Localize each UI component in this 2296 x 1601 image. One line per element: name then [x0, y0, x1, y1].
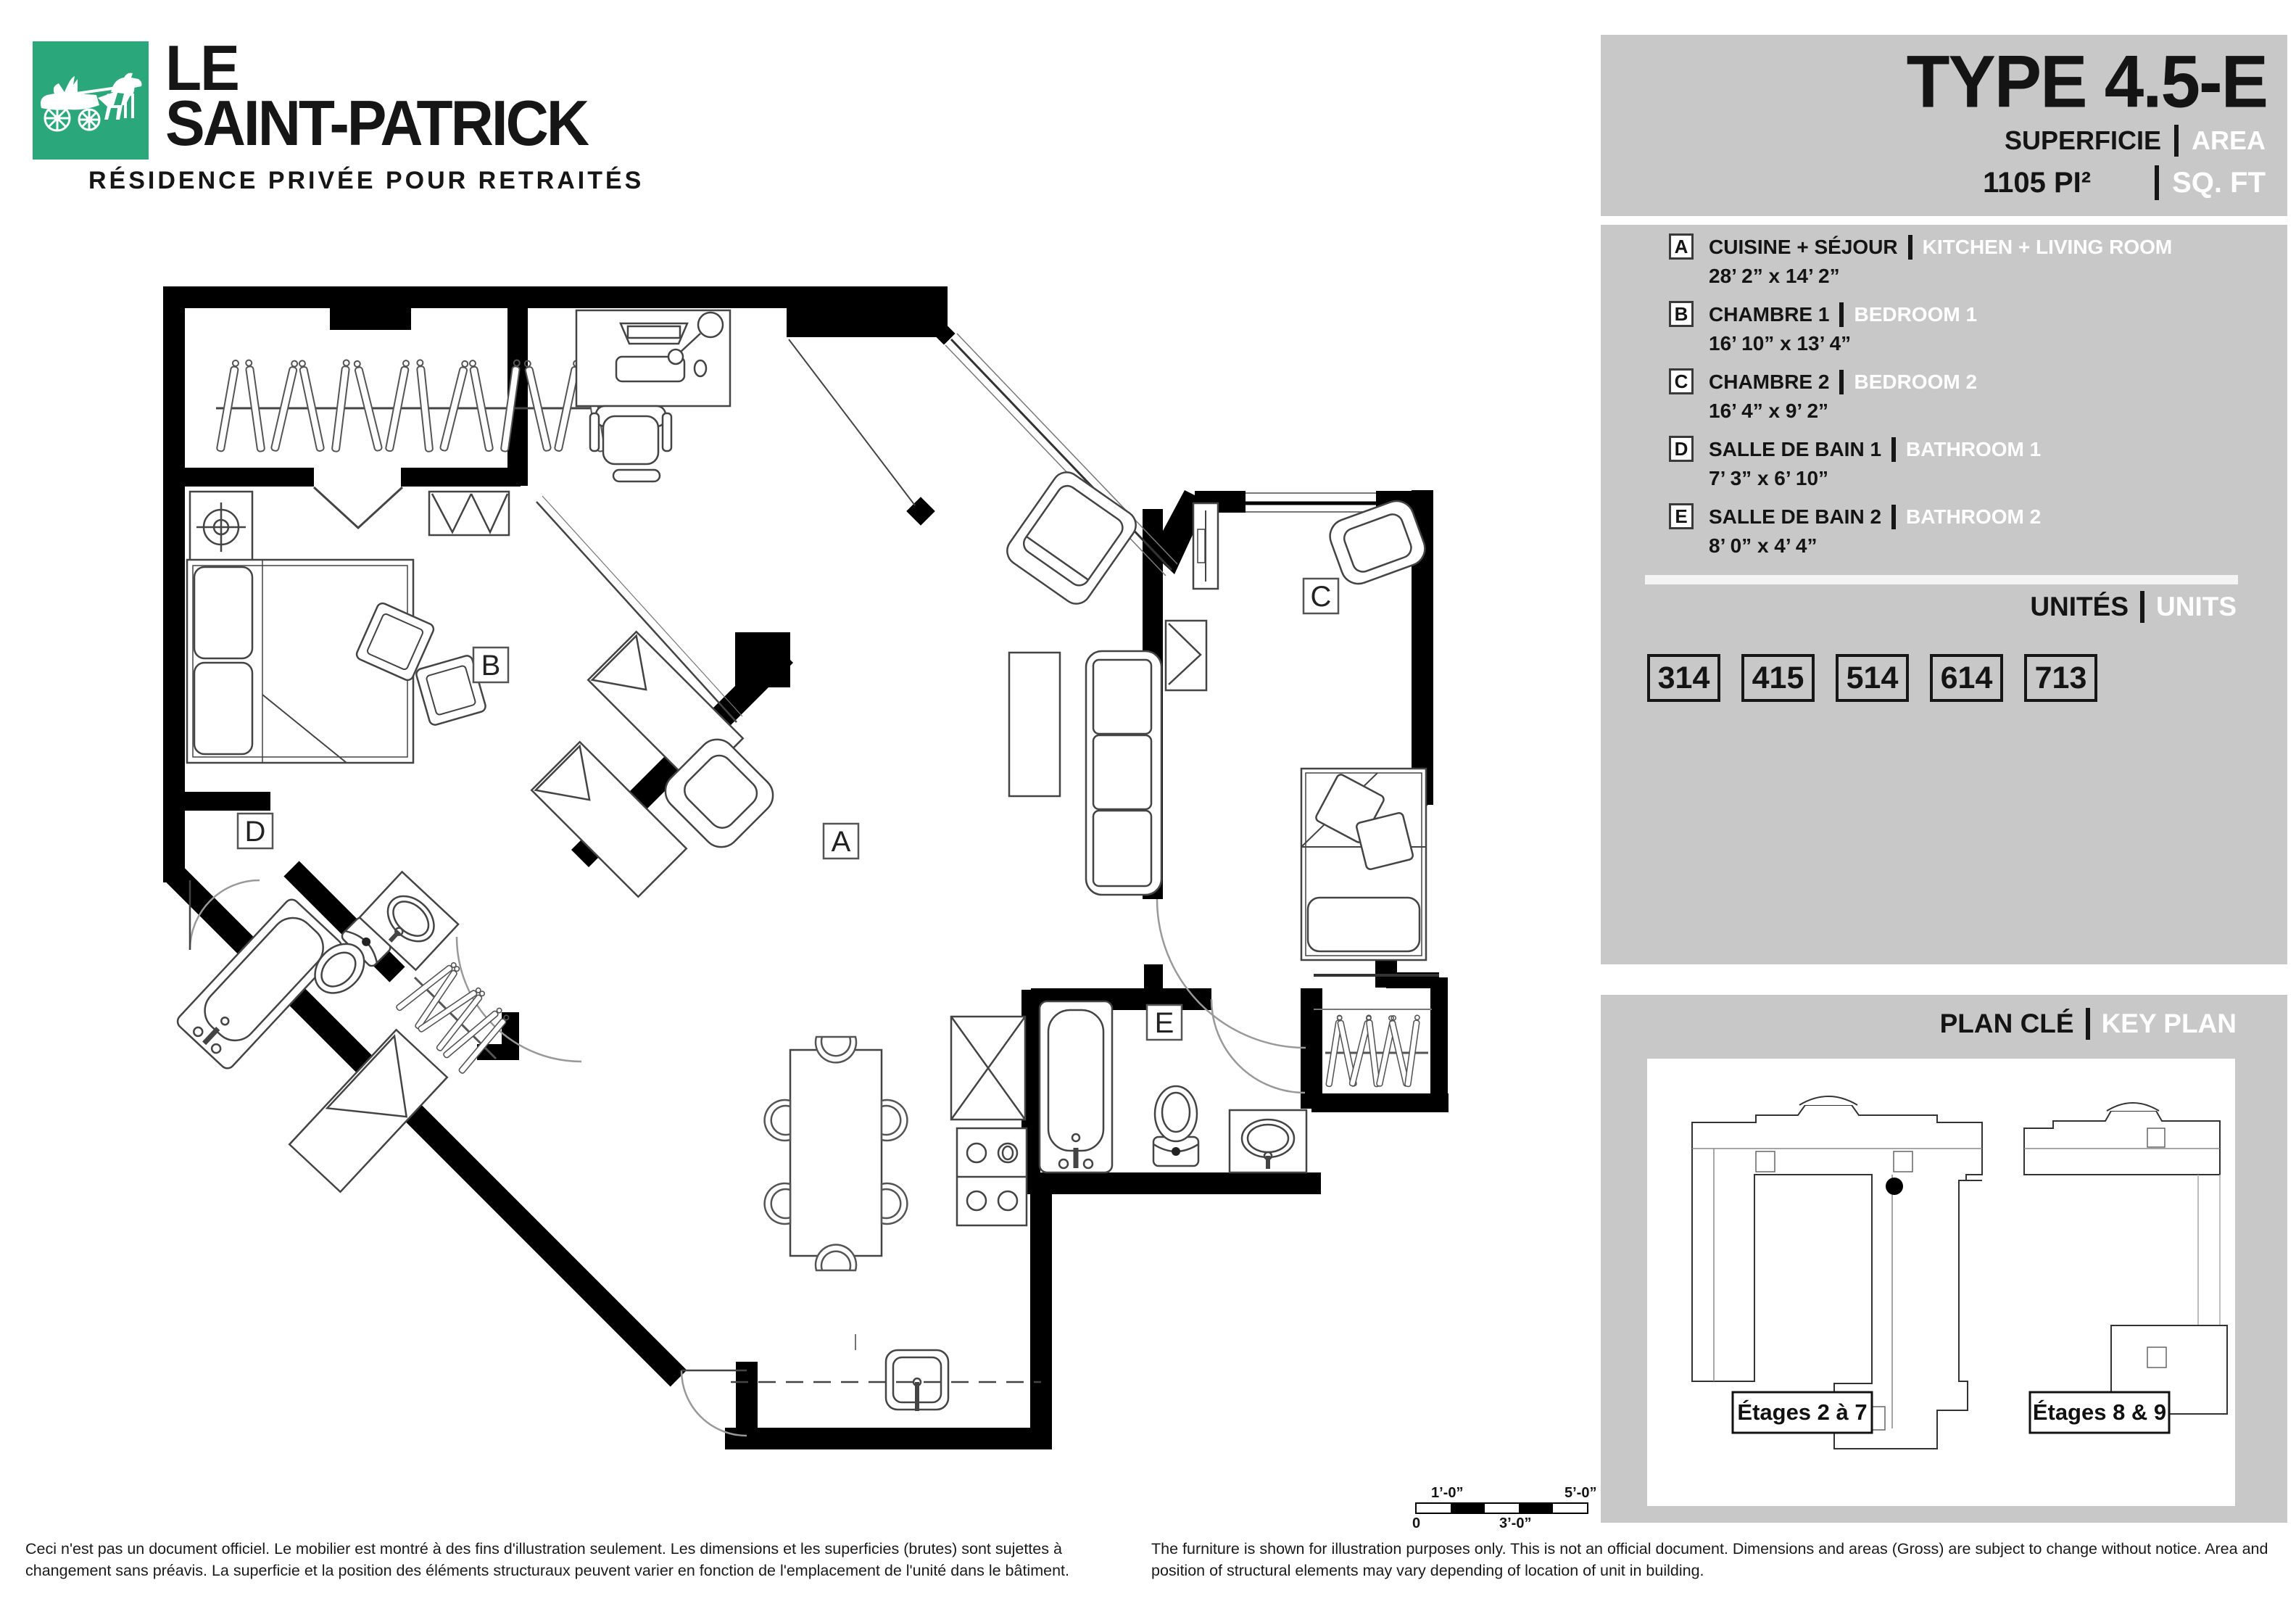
legend-item-e: E SALLE DE BAIN 2BATHROOM 2 8’ 0” x 4’ 4…: [1669, 503, 2273, 560]
room-name-fr: CHAMBRE 2: [1709, 371, 1829, 394]
legend-letter: A: [1669, 233, 1694, 260]
ceiling-light: [190, 492, 252, 563]
key-plan-panel: PLAN CLÉ KEY PLAN: [1601, 995, 2287, 1523]
units-label-en: UNITS: [2156, 592, 2237, 622]
toilet-e: [1153, 1086, 1198, 1166]
floor-plan-sheet: LE SAINT-PATRICK RÉSIDENCE PRIVÉE POUR R…: [0, 0, 2296, 1601]
room-name-fr: SALLE DE BAIN 1: [1709, 438, 1881, 461]
room-label-a: A: [832, 826, 851, 858]
unit-number: 415: [1741, 654, 1815, 702]
floors-8-9-label: Étages 8 & 9: [2033, 1399, 2166, 1425]
room-name-en: BEDROOM 1: [1854, 303, 1977, 326]
disclaimer-french: Ceci n'est pas un document officiel. Le …: [25, 1539, 1135, 1581]
key-plan-header: PLAN CLÉ KEY PLAN: [1940, 1008, 2237, 1040]
legend-item-d: D SALLE DE BAIN 1BATHROOM 1 7’ 3” x 6’ 1…: [1669, 436, 2273, 492]
area-label: AREA: [2192, 125, 2266, 156]
refrigerator: [951, 1017, 1025, 1120]
dresser-c: [1166, 621, 1206, 690]
disclaimer-english: The furniture is shown for illustration …: [1151, 1539, 2279, 1581]
sofa: [1086, 651, 1161, 895]
room-label-e: E: [1155, 1007, 1174, 1039]
bathroom2: [1040, 1001, 1428, 1172]
closet-e: [1325, 1015, 1428, 1087]
room-label-b: B: [481, 650, 501, 682]
scale-5ft: 5’-0”: [1564, 1485, 1596, 1502]
bedroom1-furniture: [187, 310, 743, 897]
scale-3ft: 3’-0”: [1499, 1515, 1531, 1532]
scale-bar: 1’-0” 5’-0” 0 3’-0”: [1414, 1485, 1595, 1537]
bed-double: [187, 560, 486, 763]
scale-segments: [1415, 1502, 1588, 1514]
unit-floor-plan: A B C D E: [0, 261, 1493, 1494]
building-floors-8-9: [2024, 1103, 2227, 1414]
dresser: [429, 492, 509, 535]
unit-number-list: 314 415 514 614 713: [1647, 654, 2097, 702]
room-name-en: KITCHEN + LIVING ROOM: [1923, 236, 2173, 259]
console-table: [1009, 653, 1060, 796]
room-name-fr: CUISINE + SÉJOUR: [1709, 236, 1898, 259]
kitchen-sink: [886, 1350, 948, 1411]
room-name-fr: SALLE DE BAIN 2: [1709, 505, 1881, 529]
unit-number: 314: [1647, 654, 1720, 702]
unit-number: 514: [1836, 654, 1909, 702]
section-divider: [1645, 575, 2238, 584]
room-name-en: BEDROOM 2: [1854, 371, 1977, 394]
lounge-chair: [1001, 467, 1141, 610]
legend-item-b: B CHAMBRE 1BEDROOM 1 16’ 10” x 13’ 4”: [1669, 301, 2273, 357]
room-name-en: BATHROOM 2: [1906, 505, 2041, 529]
separator: [2174, 125, 2179, 157]
key-plan-drawing: Étages 2 à 7 Étages 8 & 9: [1647, 1059, 2235, 1506]
unit-number: 614: [1930, 654, 2003, 702]
room-dims: 28’ 2” x 14’ 2”: [1709, 265, 2273, 288]
tv-unit: [1193, 503, 1218, 589]
legend-letter: B: [1669, 301, 1694, 327]
room-dims: 8’ 0” x 4’ 4”: [1709, 534, 2273, 558]
sink-e: [1230, 1110, 1306, 1172]
key-plan-label-en: KEY PLAN: [2102, 1009, 2237, 1039]
units-header: UNITÉS UNITS: [2030, 591, 2237, 623]
desk-chair: [590, 406, 671, 481]
key-plan-canvas: Étages 2 à 7 Étages 8 & 9: [1647, 1059, 2235, 1506]
brand-name: SAINT-PATRICK: [165, 87, 587, 161]
key-plan-label-fr: PLAN CLÉ: [1940, 1009, 2074, 1039]
floors-2-7-label: Étages 2 à 7: [1737, 1399, 1867, 1425]
legend-panel: A CUISINE + SÉJOURKITCHEN + LIVING ROOM …: [1601, 225, 2287, 964]
scale-0: 0: [1412, 1515, 1420, 1532]
stove: [957, 1128, 1027, 1225]
bed-c: [1301, 769, 1426, 960]
area-value: 1105 PI²: [1983, 167, 2091, 199]
sqft-label: SQ. FT: [2172, 167, 2266, 199]
scale-1ft: 1’-0”: [1431, 1485, 1463, 1502]
separator: [2155, 165, 2159, 200]
horse-carriage-logo-icon: [33, 41, 149, 160]
unit-type-title: TYPE 4.5-E: [1907, 39, 2267, 125]
superficie-label: SUPERFICIE: [2005, 125, 2161, 156]
legend-letter: E: [1669, 503, 1694, 529]
unit-location-dot: [1886, 1178, 1903, 1195]
unit-number: 713: [2024, 654, 2097, 702]
room-label-c: C: [1311, 581, 1332, 613]
legend-letter: C: [1669, 368, 1694, 394]
bathtub-e: [1040, 1001, 1112, 1172]
room-name-en: BATHROOM 1: [1906, 438, 2041, 461]
room-dims: 7’ 3” x 6’ 10”: [1709, 467, 2273, 490]
room-name-fr: CHAMBRE 1: [1709, 303, 1829, 326]
room-label-d: D: [245, 816, 266, 848]
room-dims: 16’ 10” x 13’ 4”: [1709, 332, 2273, 355]
legend-letter: D: [1669, 436, 1694, 462]
legend-item-a: A CUISINE + SÉJOURKITCHEN + LIVING ROOM …: [1669, 233, 2273, 290]
bedroom2-furniture: [1166, 496, 1430, 960]
dining-set: [765, 1037, 908, 1270]
legend-item-c: C CHAMBRE 2BEDROOM 2 16’ 4” x 9’ 2”: [1669, 368, 2273, 425]
title-panel: TYPE 4.5-E SUPERFICIE AREA 1105 PI² SQ. …: [1601, 35, 2287, 216]
units-label-fr: UNITÉS: [2030, 592, 2129, 622]
desk: [576, 310, 730, 406]
room-dims: 16’ 4” x 9’ 2”: [1709, 400, 2273, 423]
brand-tagline: RÉSIDENCE PRIVÉE POUR RETRAITÉS: [88, 167, 644, 195]
